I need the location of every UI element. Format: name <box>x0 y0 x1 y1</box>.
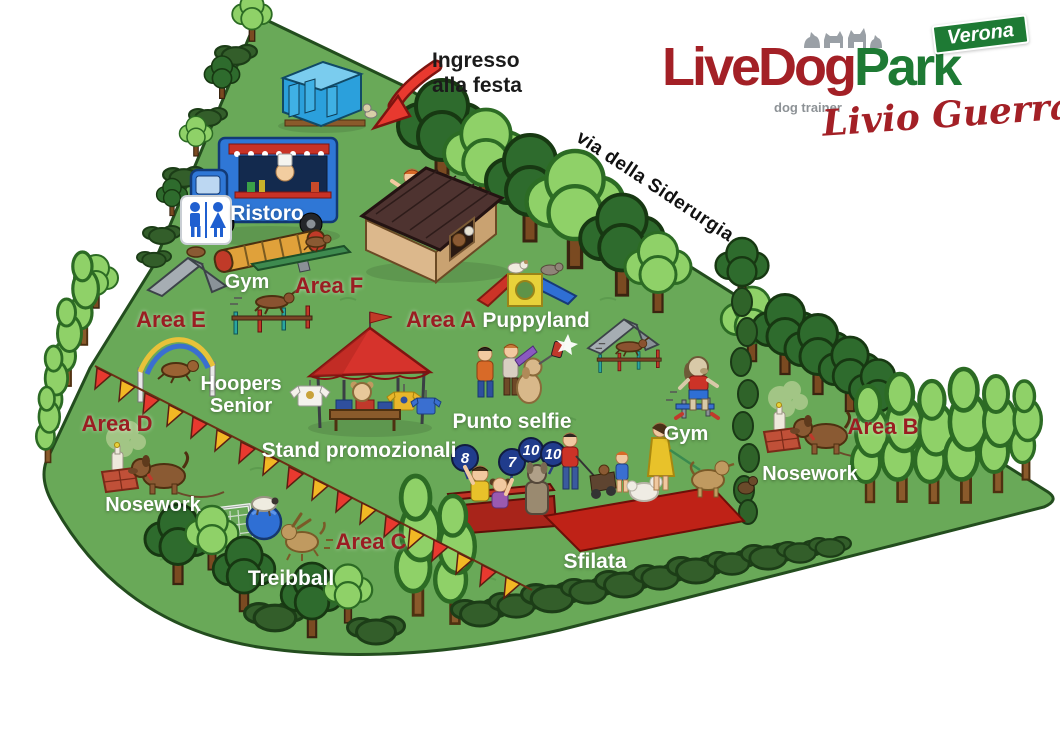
label-punto-selfie: Punto selfie <box>452 410 571 433</box>
score-paddle-4: 10 <box>545 446 562 463</box>
label-puppyland: Puppyland <box>482 309 589 332</box>
logo-verona-badge: Verona <box>932 14 1030 54</box>
label-sfilata: Sfilata <box>563 550 626 573</box>
restroom-sign-icon <box>181 196 231 244</box>
entrance-line1: Ingresso <box>432 48 522 73</box>
label-area-d: Area D <box>82 412 153 436</box>
entrance-line2: alla festa <box>432 73 522 98</box>
event-map: 8 7 10 10 <box>0 0 1060 740</box>
logo-wordmark: LiveDogPark <box>662 40 959 94</box>
score-paddle-1: 8 <box>461 450 470 467</box>
entrance-label: Ingresso alla festa <box>432 48 522 98</box>
label-area-c: Area C <box>336 530 407 554</box>
score-paddle-2: 7 <box>508 454 517 471</box>
label-nosework-west: Nosework <box>105 494 201 516</box>
label-gym-west: Gym <box>225 271 269 293</box>
label-hoopers-senior: HoopersSenior <box>200 373 281 417</box>
label-treibball: Treibball <box>248 567 334 590</box>
label-stand-promozionali: Stand promozionali <box>262 439 457 462</box>
label-area-b: Area B <box>848 415 919 439</box>
label-area-e: Area E <box>136 308 206 332</box>
livedogpark-logo: LiveDogPark Verona dog trainer Livio Gue… <box>652 18 1030 143</box>
label-area-f: Area F <box>295 274 363 298</box>
score-paddle-3: 10 <box>523 442 540 459</box>
label-gym-east: Gym <box>664 423 708 445</box>
logo-livedog: LiveDog <box>662 37 854 97</box>
label-nosework-east: Nosework <box>762 463 858 485</box>
label-ristoro: Ristoro <box>230 202 304 225</box>
label-area-a: Area A <box>406 308 476 332</box>
